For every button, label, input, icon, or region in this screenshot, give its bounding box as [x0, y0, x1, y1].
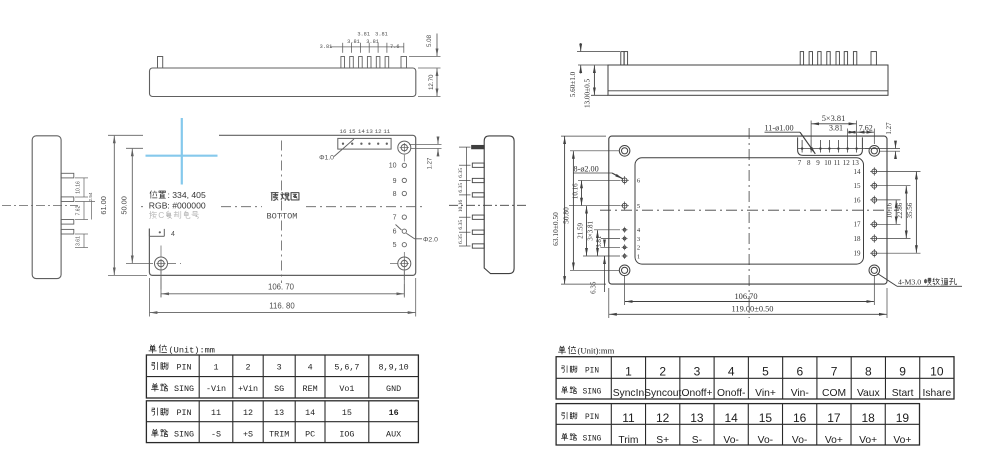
svg-text:Vin+: Vin+: [755, 388, 776, 399]
svg-text:4: 4: [308, 362, 313, 372]
svg-text:1: 1: [637, 253, 640, 260]
svg-text:+S: +S: [243, 430, 253, 440]
svg-text:Vo-: Vo-: [758, 435, 773, 446]
svg-text:REM: REM: [303, 384, 318, 394]
svg-text:11-ø1.00: 11-ø1.00: [765, 124, 794, 133]
svg-text:C: C: [158, 210, 164, 220]
svg-text:61.00: 61.00: [99, 196, 108, 215]
svg-text:13: 13: [274, 408, 284, 418]
svg-text:10: 10: [824, 159, 832, 167]
svg-text:1.27: 1.27: [428, 157, 434, 169]
svg-text:PIN: PIN: [585, 368, 599, 376]
svg-text:3.81: 3.81: [366, 39, 379, 45]
svg-text:13: 13: [690, 411, 704, 425]
svg-text:+Vin: +Vin: [238, 384, 258, 394]
svg-text:3: 3: [694, 365, 701, 379]
svg-text:6.35: 6.35: [458, 234, 464, 244]
svg-text:10.16: 10.16: [76, 181, 82, 194]
svg-text:Vo+: Vo+: [893, 435, 911, 446]
svg-text:3.81: 3.81: [357, 32, 370, 38]
svg-text:15: 15: [854, 182, 862, 190]
svg-text:3.81: 3.81: [375, 32, 388, 38]
svg-text:5.60±1.0: 5.60±1.0: [569, 71, 577, 97]
svg-text:Vin-: Vin-: [791, 388, 809, 399]
svg-text:7: 7: [798, 159, 802, 167]
svg-text:COM: COM: [822, 388, 846, 399]
svg-text:6.35: 6.35: [458, 168, 464, 178]
svg-text:Onoff+: Onoff+: [681, 388, 712, 399]
svg-text:-Vin: -Vin: [206, 384, 226, 394]
svg-text:16: 16: [340, 128, 347, 135]
svg-text:6.35: 6.35: [589, 281, 597, 294]
svg-text:12: 12: [843, 159, 851, 167]
svg-text:13: 13: [366, 128, 373, 135]
svg-text:19: 19: [854, 250, 862, 258]
svg-text:Syncout: Syncout: [644, 388, 681, 399]
svg-text:3.81: 3.81: [829, 124, 843, 133]
svg-text:15: 15: [342, 408, 352, 418]
svg-text:9: 9: [816, 159, 820, 167]
svg-text:(Unit):mm: (Unit):mm: [578, 346, 615, 356]
svg-text:Φ1.0: Φ1.0: [319, 155, 334, 162]
svg-text:: 334, 405: : 334, 405: [168, 190, 206, 200]
svg-text:106.70: 106.70: [734, 292, 757, 301]
svg-text:21.59: 21.59: [576, 223, 584, 239]
svg-text:116. 80: 116. 80: [269, 302, 295, 311]
svg-text:13: 13: [852, 159, 860, 167]
svg-text:Vo-: Vo-: [723, 435, 738, 446]
svg-text:SyncIn: SyncIn: [613, 388, 645, 399]
svg-text:1: 1: [213, 362, 218, 372]
svg-text:10.16: 10.16: [458, 200, 464, 213]
svg-text:Φ2.0: Φ2.0: [423, 237, 438, 244]
svg-text:AUX: AUX: [386, 430, 401, 440]
svg-text:7.6: 7.6: [390, 44, 400, 50]
svg-text:4: 4: [728, 365, 735, 379]
svg-text:6: 6: [796, 365, 803, 379]
svg-text:14: 14: [358, 128, 365, 135]
svg-text:13.00±0.5: 13.00±0.5: [584, 79, 592, 109]
svg-text:5,6,7: 5,6,7: [334, 362, 359, 372]
svg-text:PIN: PIN: [176, 408, 191, 418]
svg-text:4-M3.0: 4-M3.0: [898, 278, 921, 287]
svg-text:11: 11: [622, 411, 635, 425]
svg-text:11: 11: [383, 128, 390, 135]
svg-text:5: 5: [762, 365, 769, 379]
svg-text:11: 11: [834, 159, 841, 167]
svg-text:35.56: 35.56: [906, 202, 914, 218]
svg-text:PIN: PIN: [176, 362, 191, 372]
svg-text:22.86: 22.86: [896, 202, 904, 218]
svg-text:Vo1: Vo1: [339, 384, 354, 394]
svg-text:106. 70: 106. 70: [268, 283, 295, 292]
svg-text:16: 16: [793, 411, 807, 425]
svg-text:Vo+: Vo+: [859, 435, 877, 446]
svg-text:8: 8: [393, 191, 397, 198]
svg-text:S+: S+: [656, 435, 669, 446]
svg-text:GND: GND: [386, 384, 401, 394]
svg-text:19: 19: [896, 411, 910, 425]
svg-text:SING: SING: [174, 384, 194, 394]
svg-text:6.35: 6.35: [458, 183, 464, 193]
svg-text:9: 9: [393, 178, 397, 185]
svg-text:14: 14: [305, 408, 315, 418]
svg-text:9: 9: [899, 365, 906, 379]
svg-text:SING: SING: [174, 430, 194, 440]
svg-text:15: 15: [349, 128, 356, 135]
svg-text:1: 1: [625, 365, 632, 379]
svg-text:10: 10: [930, 365, 944, 379]
svg-text:17: 17: [827, 411, 841, 425]
svg-text:17: 17: [854, 221, 862, 229]
svg-text:SING: SING: [583, 435, 602, 443]
svg-text:Vo-: Vo-: [792, 435, 807, 446]
svg-text:4: 4: [171, 231, 175, 238]
svg-text:10.16: 10.16: [572, 183, 580, 199]
svg-text:2: 2: [659, 365, 666, 379]
svg-text:7.62: 7.62: [76, 205, 82, 215]
svg-text:Start: Start: [892, 388, 914, 399]
svg-text:3.81: 3.81: [320, 44, 333, 50]
svg-text:Vo+: Vo+: [825, 435, 843, 446]
svg-text:S-: S-: [692, 435, 702, 446]
svg-text:Ishare: Ishare: [923, 388, 952, 399]
svg-text:8: 8: [865, 365, 872, 379]
svg-text:2.54: 2.54: [88, 192, 93, 201]
svg-text:8,9,10: 8,9,10: [379, 362, 409, 372]
svg-text:16: 16: [854, 196, 862, 204]
svg-text:3×3.81: 3×3.81: [587, 221, 595, 241]
svg-text:8-ø2.00: 8-ø2.00: [574, 164, 599, 173]
svg-text:TRIM: TRIM: [269, 430, 289, 440]
svg-text:5×3.81: 5×3.81: [822, 114, 846, 123]
svg-text:50.80: 50.80: [562, 207, 571, 224]
svg-text:SING: SING: [583, 389, 602, 397]
svg-text:15: 15: [759, 411, 773, 425]
svg-text:12: 12: [243, 408, 253, 418]
svg-text:IOG: IOG: [339, 430, 354, 440]
svg-text:12: 12: [656, 411, 670, 425]
svg-text:7: 7: [831, 365, 838, 379]
svg-text:3: 3: [277, 362, 282, 372]
svg-text:3.81: 3.81: [595, 235, 603, 248]
svg-text:2: 2: [245, 362, 250, 372]
svg-text:18: 18: [861, 411, 875, 425]
svg-text:PC: PC: [305, 430, 315, 440]
svg-text:3.81: 3.81: [347, 39, 360, 45]
svg-text:12.70: 12.70: [428, 74, 435, 90]
svg-text:63.10±0.50: 63.10±0.50: [551, 212, 560, 246]
svg-text:5: 5: [393, 242, 397, 249]
svg-text:119.00±0.50: 119.00±0.50: [732, 305, 774, 314]
svg-text:14: 14: [724, 411, 738, 425]
svg-text:12: 12: [375, 128, 382, 135]
svg-text:6: 6: [393, 229, 397, 236]
svg-text:Trim: Trim: [618, 435, 638, 446]
svg-text:PIN: PIN: [585, 414, 599, 422]
svg-text:18: 18: [854, 235, 862, 243]
svg-text:2: 2: [637, 245, 640, 252]
svg-text:11: 11: [211, 408, 221, 418]
svg-text:7.62: 7.62: [859, 124, 873, 133]
svg-text:8: 8: [807, 159, 811, 167]
svg-text:50.00: 50.00: [119, 196, 128, 215]
svg-text:5.08: 5.08: [426, 34, 433, 47]
svg-text:6.35: 6.35: [458, 220, 464, 230]
svg-text:SG: SG: [274, 384, 284, 394]
svg-text:7: 7: [393, 215, 397, 222]
svg-text:16: 16: [389, 408, 399, 418]
svg-text:3.61: 3.61: [76, 236, 82, 246]
svg-text:Vaux: Vaux: [857, 388, 881, 399]
svg-text:14: 14: [854, 168, 862, 176]
svg-text:-S: -S: [211, 430, 221, 440]
svg-text:(Unit):mm: (Unit):mm: [169, 346, 215, 356]
svg-text:10.16: 10.16: [886, 202, 894, 218]
svg-text:10: 10: [389, 163, 397, 170]
svg-text:1.27: 1.27: [885, 122, 893, 135]
svg-text:Onoff-: Onoff-: [717, 388, 745, 399]
svg-text:BOTTOM: BOTTOM: [267, 212, 298, 222]
